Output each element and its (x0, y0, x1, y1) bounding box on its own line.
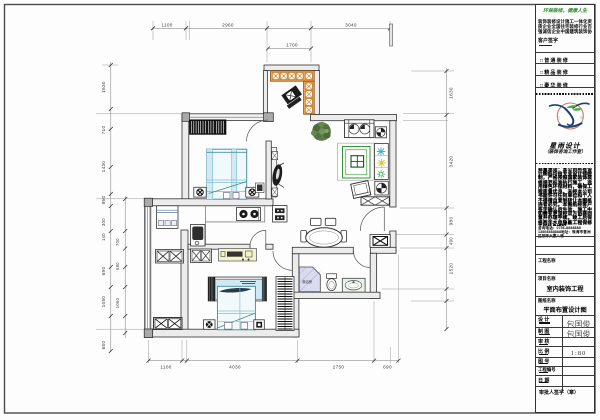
svg-text:淋浴房: 淋浴房 (302, 279, 313, 284)
svg-text:960: 960 (101, 196, 106, 205)
svg-text:140: 140 (101, 233, 106, 241)
svg-text:680: 680 (115, 262, 120, 270)
svg-text:1630: 1630 (101, 81, 106, 93)
svg-text:1100: 1100 (161, 22, 172, 27)
svg-text:1630: 1630 (449, 87, 454, 99)
svg-text:690: 690 (383, 365, 392, 370)
svg-text:1700: 1700 (286, 43, 298, 48)
svg-text:300: 300 (101, 218, 106, 226)
svg-text:3420: 3420 (449, 156, 454, 168)
svg-text:490: 490 (449, 237, 454, 245)
svg-text:2750: 2750 (333, 365, 345, 370)
svg-text:700: 700 (115, 238, 120, 246)
svg-text:1100: 1100 (160, 365, 171, 370)
svg-text:1060: 1060 (115, 297, 120, 308)
svg-text:4030: 4030 (229, 365, 241, 370)
svg-text:980: 980 (449, 217, 454, 226)
svg-text:690: 690 (101, 267, 106, 276)
svg-text:650: 650 (101, 341, 106, 350)
svg-text:1520: 1520 (449, 263, 454, 275)
svg-text:710: 710 (101, 126, 106, 135)
svg-text:2960: 2960 (222, 22, 234, 27)
svg-text:3040: 3040 (345, 22, 357, 27)
svg-text:1050: 1050 (101, 296, 106, 308)
svg-text:1430: 1430 (101, 161, 106, 173)
